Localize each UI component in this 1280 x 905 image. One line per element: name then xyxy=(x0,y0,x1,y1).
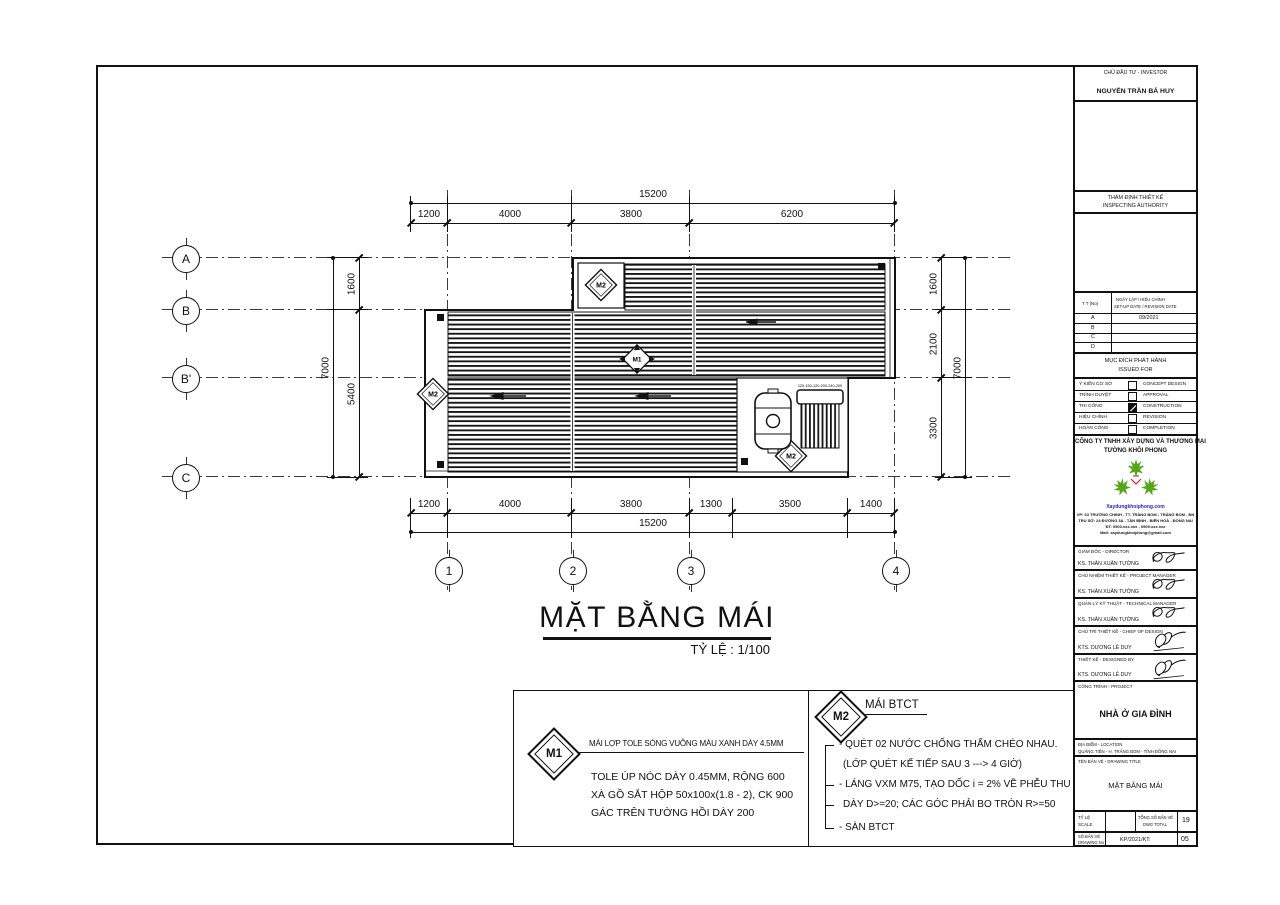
company-address: Mail: xaydungkhoiphong@gmail.com xyxy=(1075,531,1196,536)
signature xyxy=(1142,658,1194,682)
grid-bubble-2: 2 xyxy=(559,557,587,585)
dim-left-seg-1: 1600 xyxy=(347,273,358,295)
signature xyxy=(1138,575,1194,595)
dim-top-total: 15200 xyxy=(639,189,667,200)
tb-issued-for-title: MỤC ĐÍCH PHÁT HÀNH ISSUED FOR xyxy=(1074,353,1197,378)
grid-bubble-C: C xyxy=(172,464,200,492)
grid-bubble-B2: B' xyxy=(172,365,200,393)
tb-location: ĐỊA ĐIỂM - LOCATION QUẢNG TIẾN - H. TRẢN… xyxy=(1074,739,1197,756)
m2-note-line: - LÁNG VXM M75, TẠO DỐC i = 2% VỀ PHỄU T… xyxy=(839,779,1071,790)
grid-bubble-3: 3 xyxy=(677,557,705,585)
dim-bot-total: 15200 xyxy=(639,518,667,529)
issued-checkbox-3[interactable] xyxy=(1128,414,1137,423)
roof-drain-icon xyxy=(437,314,444,321)
issued-checkbox-0[interactable] xyxy=(1128,381,1137,390)
tb-person-row: QUẢN LÝ KỸ THUẬT - TECHNICAL MANAGER KS.… xyxy=(1074,598,1197,626)
tb-person-row: THIẾT KẾ - DESIGNED BY KTS. DƯƠNG LÊ DUY xyxy=(1074,654,1197,681)
investor-name: NGUYỄN TRẦN BÁ HUY xyxy=(1075,88,1196,96)
tb-scale-row: TỶ LỆ SCALE TỔNG SỐ BẢN VẼ DWG TOTAL 19 xyxy=(1074,811,1197,832)
number-code: KP/2021/KT: xyxy=(1120,837,1151,844)
company-name: CÔNG TY TNHH XÂY DỰNG VÀ THƯƠNG MẠI xyxy=(1075,439,1196,446)
dim-left-total: 7000 xyxy=(321,357,332,379)
solar-heater-label: 120-150-120-200-240-200 xyxy=(798,384,842,388)
m2-note-line: - SÀN BTCT xyxy=(839,822,895,833)
plan-title-underline xyxy=(543,637,771,640)
dim-bot-seg-5: 3500 xyxy=(779,499,801,510)
tb-drawing-title: TÊN BẢN VẼ - DRAWING TITLE MẶT BẰNG MÁI xyxy=(1074,756,1197,811)
dim-bot-seg-6: 1400 xyxy=(860,499,882,510)
dim-bot-seg-3: 3800 xyxy=(620,499,642,510)
m1-note-line: TOLE ÚP NÓC DÀY 0.45MM, RỘNG 600 xyxy=(591,771,785,783)
grid-bubble-1: 1 xyxy=(435,557,463,585)
plan-scale: TỶ LỆ : 1/100 xyxy=(630,642,770,657)
svg-text:M1: M1 xyxy=(632,357,641,364)
plan-title: MẶT BẰNG MÁI xyxy=(539,601,775,635)
dim-left-seg-2: 5400 xyxy=(347,383,358,405)
total-value: 19 xyxy=(1182,817,1190,826)
issued-checkbox-4[interactable] xyxy=(1128,425,1137,434)
tb-inspecting: THẨM ĐỊNH THIẾT KẾ INSPECTING AUTHORITY xyxy=(1074,191,1197,213)
roof-plan: M2 M2 M2 M1 xyxy=(410,250,910,490)
company-logo xyxy=(1110,457,1162,501)
dim-right-seg-3: 3300 xyxy=(929,417,940,439)
issued-checkbox-2[interactable] xyxy=(1128,403,1137,412)
tb-project: CÔNG TRÌNH - PROJECT NHÀ Ở GIA ĐÌNH xyxy=(1074,681,1197,739)
issued-checkbox-1[interactable] xyxy=(1128,392,1137,401)
company-website[interactable]: Xaydungkhoiphong.com xyxy=(1075,504,1196,510)
grid-bubble-A: A xyxy=(172,245,200,273)
signature xyxy=(1138,548,1194,568)
investor-label: CHỦ ĐẦU TƯ - INVESTOR xyxy=(1075,70,1196,76)
note-m1-box: M1 MÁI LỢP TOLE SÓNG VUÔNG MÀU XANH DÀY … xyxy=(513,690,810,847)
m2-note-line: DÀY D>=20; CÁC GÓC PHẢI BO TRÒN R>=50 xyxy=(843,799,1056,810)
dim-bot-seg-4: 1300 xyxy=(700,499,722,510)
dim-bot-seg-2: 4000 xyxy=(499,499,521,510)
water-tank xyxy=(755,389,791,453)
m2-note-line: (LỚP QUÉT KẾ TIẾP SAU 3 ---> 4 GIỜ) xyxy=(843,759,1022,770)
drawing-sheet: A B B' C 1 2 3 4 15200 1200 4000 3800 62… xyxy=(0,0,1280,905)
svg-text:M2: M2 xyxy=(786,454,796,461)
dim-right-total: 7000 xyxy=(953,357,964,379)
number-value: 05 xyxy=(1181,836,1189,845)
tb-person-row: CHỦ NHIỆM THIẾT KẾ - PROJECT MANAGER KS.… xyxy=(1074,570,1197,598)
dim-top-seg-4: 6200 xyxy=(781,209,803,220)
tb-issued-for-rows: Ý KIẾN CƠ SỞ CONCEPT DESIGN TRÌNH DUYỆT … xyxy=(1074,378,1197,435)
title-block: CHỦ ĐẦU TƯ - INVESTOR NGUYỄN TRẦN BÁ HUY… xyxy=(1073,65,1198,847)
signature xyxy=(1142,630,1194,654)
dim-right-seg-1: 1600 xyxy=(929,273,940,295)
m1-note-marker: M1 xyxy=(527,727,581,781)
svg-text:M2: M2 xyxy=(428,392,438,399)
m2-note-marker: M2 xyxy=(814,690,868,744)
project-name: NHÀ Ở GIA ĐÌNH xyxy=(1075,709,1196,720)
signature xyxy=(1138,603,1194,623)
grid-bubble-4: 4 xyxy=(882,557,910,585)
grid-bubble-B: B xyxy=(172,297,200,325)
dim-right-seg-2: 2100 xyxy=(929,333,940,355)
tole-roof-upper xyxy=(625,264,885,310)
dim-top-seg-3: 3800 xyxy=(620,209,642,220)
tb-person-row: CHỦ TRÌ THIẾT KẾ - CHIEF OF DESIGN KTS. … xyxy=(1074,626,1197,654)
tole-roof-lower xyxy=(448,378,737,472)
svg-text:M2: M2 xyxy=(596,283,606,290)
solar-heater xyxy=(797,390,843,448)
roof-drain-icon xyxy=(741,458,748,465)
m2-note-line: - QUÉT 02 NƯỚC CHỐNG THẤM CHÉO NHAU. xyxy=(839,739,1057,750)
tb-investor: CHỦ ĐẦU TƯ - INVESTOR NGUYỄN TRẦN BÁ HUY xyxy=(1074,66,1197,101)
tole-roof-middle xyxy=(448,312,885,376)
dim-top-seg-2: 4000 xyxy=(499,209,521,220)
drawing-title-value: MẶT BẰNG MÁI xyxy=(1075,781,1196,790)
company-name: TƯỜNG KHÔI PHONG xyxy=(1075,448,1196,455)
tb-person-row: GIÁM ĐỐC - DIRECTOR KS. THÂN XUÂN TƯỜNG xyxy=(1074,546,1197,570)
roof-drain-icon xyxy=(878,263,885,270)
m1-note-line: XÀ GỒ SẮT HỘP 50x100x(1.8 - 2), CK 900 xyxy=(591,789,793,801)
note-m2-box: M2 MÁI BTCT - QUÉT 02 NƯỚC CHỐNG THẤM CH… xyxy=(808,690,1075,847)
m1-note-line: GÁC TRÊN TƯỜNG HỒI DÀY 200 xyxy=(591,807,754,819)
roof-drain-icon xyxy=(437,461,444,468)
tb-revision-table: T T (No) NGÀY LẬP / HIỆU CHỈNH SET-UP DA… xyxy=(1074,292,1197,353)
m1-note-headline: MÁI LỢP TOLE SÓNG VUÔNG MÀU XANH DÀY 4.5… xyxy=(589,739,783,748)
dim-bot-seg-1: 1200 xyxy=(418,499,440,510)
tb-company: CÔNG TY TNHH XÂY DỰNG VÀ THƯƠNG MẠI TƯỜN… xyxy=(1074,435,1197,546)
dim-top-seg-1: 1200 xyxy=(418,209,440,220)
tb-number-row: SỐ BẢN VẼ DRAWING No KP/2021/KT: 05 xyxy=(1074,832,1197,846)
m2-note-headline: MÁI BTCT xyxy=(863,699,927,715)
